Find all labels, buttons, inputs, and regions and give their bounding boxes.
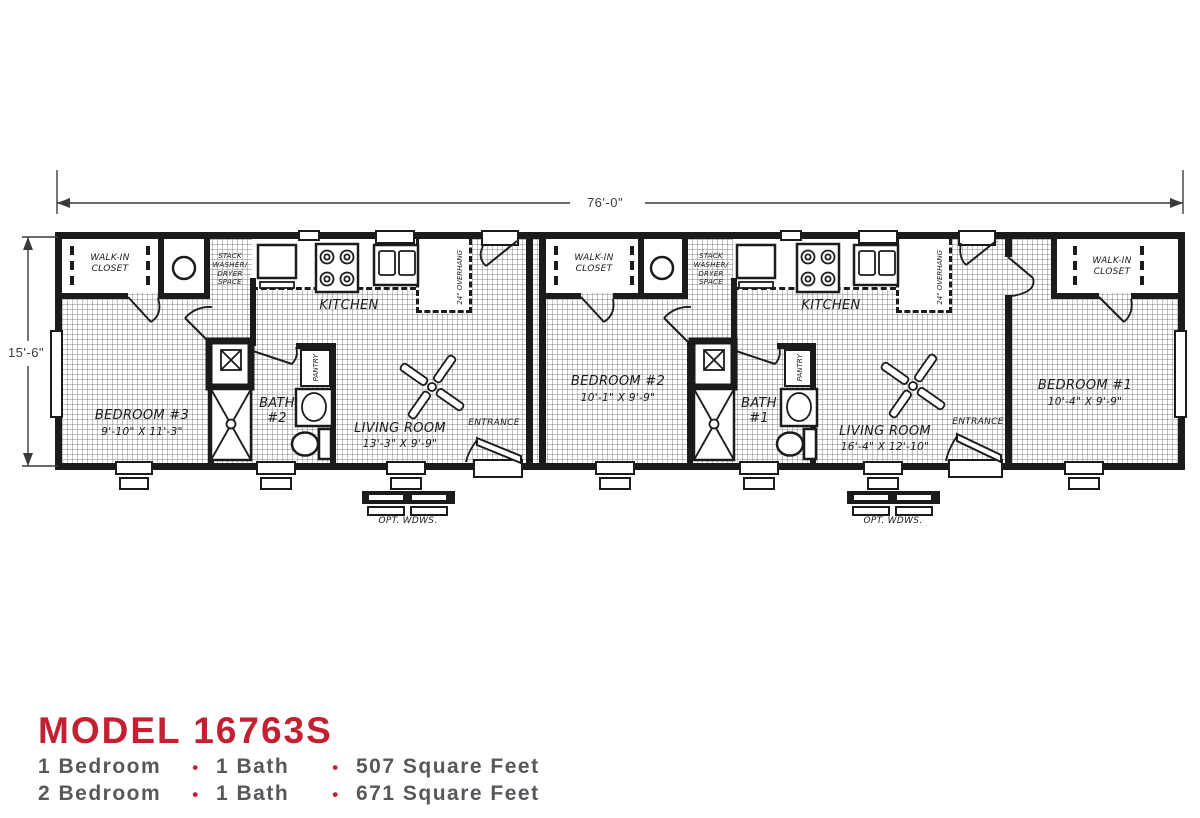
toilet-icon xyxy=(292,429,331,459)
shower-icon xyxy=(211,389,251,460)
bullet-icon: • xyxy=(176,758,216,778)
spec2-baths: 1 Bath xyxy=(216,782,316,806)
spec1-sqft: 507 Square Feet xyxy=(356,755,540,779)
right-living-size: 16'-4" X 12'-10" xyxy=(820,441,950,453)
floorplan-page: PANTRY PANTRY xyxy=(0,0,1200,818)
left-overhang-label-wrap: 24" OVERHANG xyxy=(452,243,468,311)
spec-line-2: 2 Bedroom • 1 Bath • 671 Square Feet xyxy=(38,782,540,806)
spec1-baths: 1 Bath xyxy=(216,755,316,779)
ceiling-fan-icon xyxy=(399,354,464,419)
right-entrance-label: ENTRANCE xyxy=(946,417,1010,428)
left-living-label: LIVING ROOM xyxy=(340,421,460,436)
bullet-icon: • xyxy=(316,758,356,778)
left-bath2-label: BATH #2 xyxy=(256,396,298,427)
furnace-closet-icon xyxy=(692,341,734,387)
right-overhang-label: 24" OVERHANG xyxy=(936,250,944,305)
kitchen-sink-icon xyxy=(854,245,898,285)
width-dimension-label: 76'-0" xyxy=(562,195,648,210)
right-bath1-label: BATH #1 xyxy=(738,396,780,427)
bathroom-sink-icon xyxy=(781,389,817,426)
refrigerator-icon xyxy=(737,245,775,288)
right-walkin-closet1-label: WALK-IN CLOSET xyxy=(1066,256,1158,277)
height-dimension-label: 15'-6" xyxy=(2,345,50,360)
water-heater-icon xyxy=(173,257,195,279)
left-entrance-label: ENTRANCE xyxy=(462,418,526,429)
right-living-label: LIVING ROOM xyxy=(820,424,950,439)
shower-icon xyxy=(694,389,734,460)
bullet-icon: • xyxy=(316,785,356,805)
right-washer-dryer-label: STACK WASHER/ DRYER SPACE xyxy=(688,252,734,287)
stove-icon xyxy=(316,244,358,292)
right-kitchen-label: KITCHEN xyxy=(795,298,867,313)
right-overhang-label-wrap: 24" OVERHANG xyxy=(932,243,948,311)
right-opt-windows-label: OPT. WDWS. xyxy=(853,516,933,527)
spec2-bedrooms: 2 Bedroom xyxy=(38,782,176,806)
spec-line-1: 1 Bedroom • 1 Bath • 507 Square Feet xyxy=(38,755,540,779)
refrigerator-icon xyxy=(258,245,296,288)
bathroom-sink-icon xyxy=(296,389,332,426)
spec2-sqft: 671 Square Feet xyxy=(356,782,540,806)
right-bedroom2-size: 10'-1" X 9'-9" xyxy=(548,392,688,404)
left-overhang-label: 24" OVERHANG xyxy=(456,250,464,305)
right-bedroom2-label: BEDROOM #2 xyxy=(548,374,688,389)
kitchen-sink-icon xyxy=(374,245,418,285)
toilet-icon xyxy=(777,429,816,459)
left-bedroom3-label: BEDROOM #3 xyxy=(78,408,206,423)
stove-icon xyxy=(797,244,839,292)
spec1-bedrooms: 1 Bedroom xyxy=(38,755,176,779)
left-walkin-closet-label: WALK-IN CLOSET xyxy=(62,253,158,274)
water-heater-icon xyxy=(651,257,673,279)
right-walkin-closet2-label: WALK-IN CLOSET xyxy=(550,253,638,274)
left-opt-windows-label: OPT. WDWS. xyxy=(368,516,448,527)
left-kitchen-label: KITCHEN xyxy=(313,298,385,313)
left-washer-dryer-label: STACK WASHER/ DRYER SPACE xyxy=(206,252,254,287)
furnace-closet-icon xyxy=(209,341,251,387)
bullet-icon: • xyxy=(176,785,216,805)
right-bedroom1-label: BEDROOM #1 xyxy=(1020,378,1150,393)
left-living-size: 13'-3" X 9'-9" xyxy=(340,438,460,450)
model-title: MODEL 16763S xyxy=(38,710,333,752)
ceiling-fan-icon xyxy=(880,353,945,418)
left-bedroom3-size: 9'-10" X 11'-3" xyxy=(78,426,206,438)
right-bedroom1-size: 10'-4" X 9'-9" xyxy=(1020,396,1150,408)
